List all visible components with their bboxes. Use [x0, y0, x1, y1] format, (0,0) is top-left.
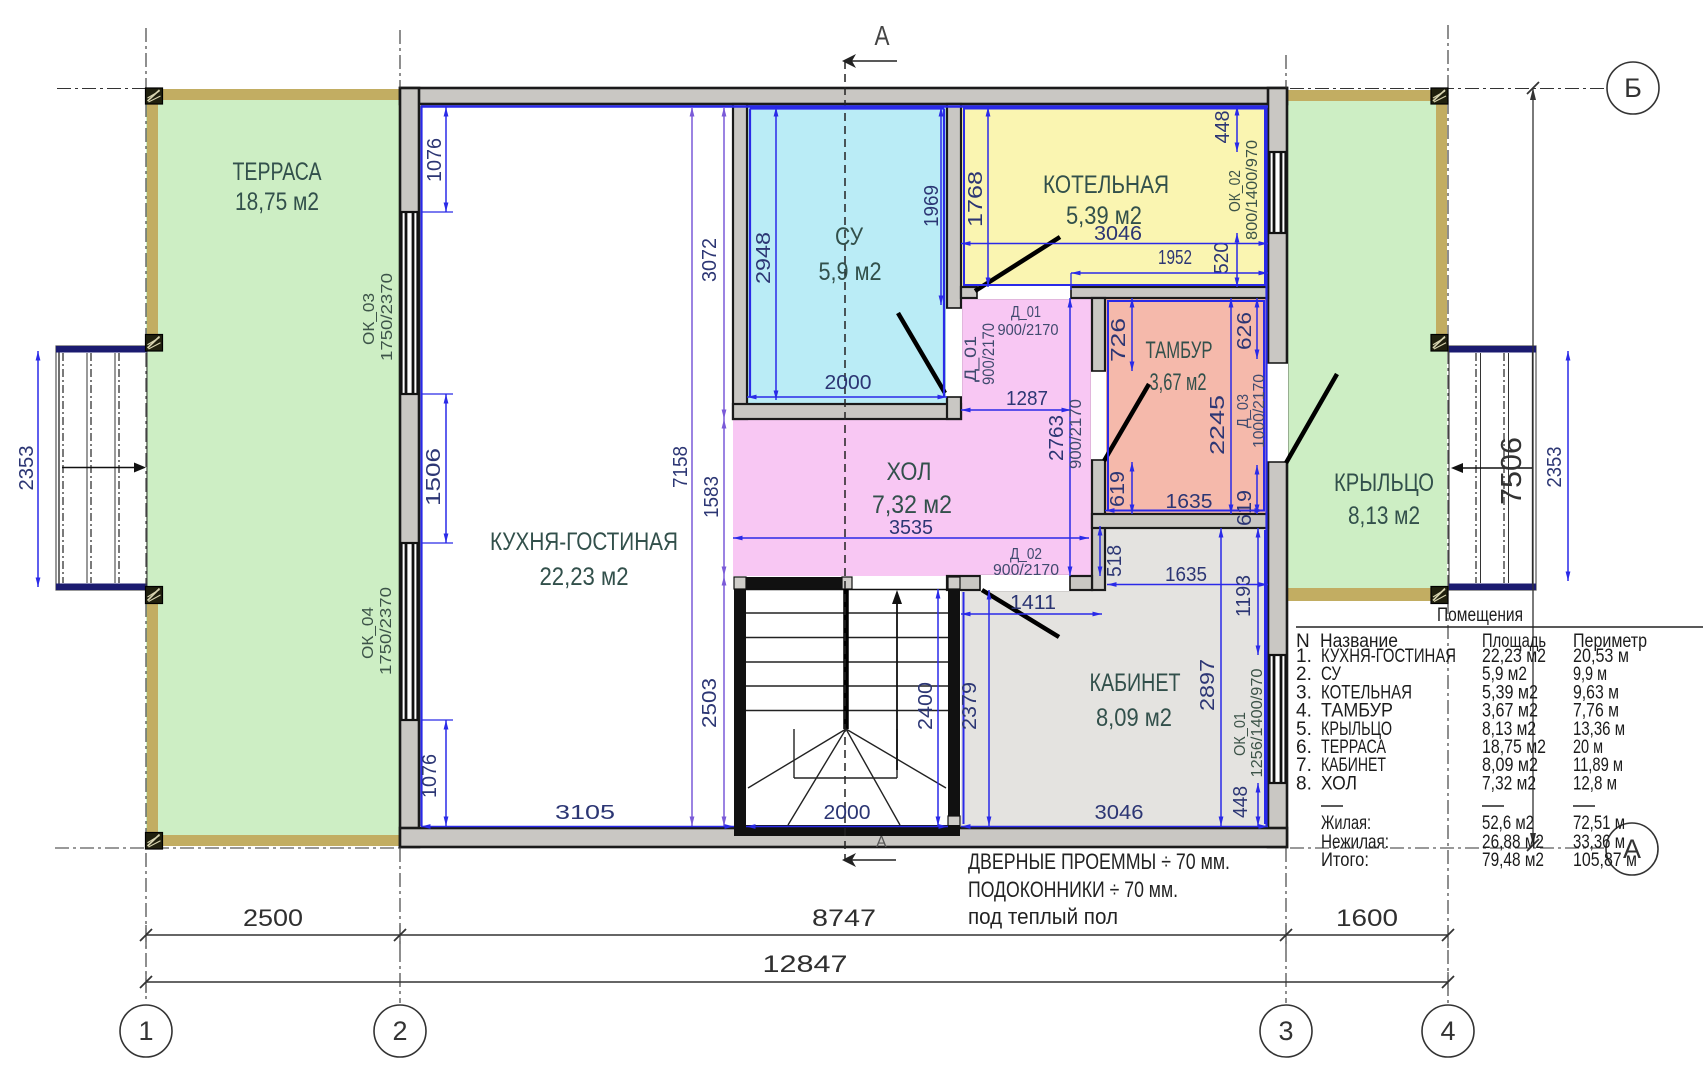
svg-text:1193: 1193 — [1233, 575, 1255, 617]
svg-text:1076: 1076 — [424, 138, 446, 182]
svg-text:ТЕРРАСА: ТЕРРАСА — [233, 158, 322, 186]
svg-text:КАБИНЕТ: КАБИНЕТ — [1090, 669, 1181, 697]
svg-text:2400: 2400 — [915, 682, 937, 730]
svg-text:3: 3 — [1278, 1016, 1293, 1046]
svg-text:22,23 м2: 22,23 м2 — [540, 563, 629, 591]
svg-text:2503: 2503 — [699, 678, 721, 728]
svg-text:72,51 м: 72,51 м — [1573, 813, 1625, 834]
svg-text:А: А — [876, 834, 887, 851]
svg-text:520: 520 — [1211, 242, 1233, 274]
svg-text:1076: 1076 — [419, 754, 441, 798]
svg-text:4: 4 — [1440, 1016, 1455, 1046]
svg-text:СУ: СУ — [835, 223, 863, 251]
svg-text:5,9 м2: 5,9 м2 — [819, 258, 882, 286]
svg-text:900/2170: 900/2170 — [998, 322, 1059, 339]
svg-text:1: 1 — [138, 1016, 153, 1046]
svg-text:ОК_04: ОК_04 — [360, 607, 377, 659]
svg-text:3072: 3072 — [699, 238, 721, 282]
svg-text:518: 518 — [1104, 545, 1126, 577]
svg-text:3535: 3535 — [889, 517, 933, 539]
svg-text:ОК_01: ОК_01 — [1232, 712, 1249, 756]
svg-text:2245: 2245 — [1207, 395, 1229, 455]
svg-text:Д_02: Д_02 — [1010, 546, 1042, 563]
svg-text:КУХНЯ-ГОСТИНАЯ: КУХНЯ-ГОСТИНАЯ — [490, 528, 678, 556]
svg-text:1000/2170: 1000/2170 — [1251, 374, 1268, 448]
svg-text:1411: 1411 — [1010, 592, 1056, 614]
svg-text:2000: 2000 — [825, 372, 872, 394]
svg-text:448: 448 — [1212, 111, 1234, 144]
svg-text:Помещения: Помещения — [1437, 605, 1523, 626]
svg-text:2948: 2948 — [753, 232, 775, 284]
svg-text:ОК_02: ОК_02 — [1227, 170, 1244, 212]
svg-text:A: A — [875, 20, 890, 51]
svg-text:под теплый пол: под теплый пол — [968, 904, 1118, 929]
svg-text:3,67 м2: 3,67 м2 — [1150, 369, 1207, 396]
svg-text:619: 619 — [1234, 490, 1256, 526]
svg-text:105,87 м: 105,87 м — [1573, 850, 1637, 871]
svg-text:8747: 8747 — [812, 905, 876, 932]
svg-text:2353: 2353 — [16, 446, 38, 491]
svg-text:7,32 м2: 7,32 м2 — [1482, 773, 1536, 794]
svg-text:Д_03: Д_03 — [1235, 394, 1252, 428]
svg-text:12847: 12847 — [763, 951, 848, 978]
svg-text:КОТЕЛЬНАЯ: КОТЕЛЬНАЯ — [1043, 171, 1169, 199]
svg-text:1506: 1506 — [423, 448, 445, 506]
svg-text:1750/2370: 1750/2370 — [379, 273, 396, 361]
svg-text:7506: 7506 — [1496, 437, 1528, 505]
svg-text:800/1400/970: 800/1400/970 — [1244, 140, 1261, 240]
svg-text:Итого:: Итого: — [1321, 850, 1369, 871]
svg-text:КУХНЯ-ГОСТИНАЯ: КУХНЯ-ГОСТИНАЯ — [1321, 646, 1456, 667]
svg-text:2763: 2763 — [1046, 415, 1068, 461]
svg-text:ХОЛ: ХОЛ — [887, 458, 932, 486]
svg-text:КРЫЛЬЦО: КРЫЛЬЦО — [1334, 469, 1434, 497]
svg-text:Д_01: Д_01 — [961, 336, 980, 382]
svg-text:2897: 2897 — [1197, 659, 1219, 711]
svg-text:18,75 м2: 18,75 м2 — [235, 188, 319, 216]
svg-text:8,09 м2: 8,09 м2 — [1096, 704, 1172, 732]
svg-text:619: 619 — [1107, 471, 1129, 507]
svg-text:ХОЛ: ХОЛ — [1321, 773, 1357, 794]
svg-text:900/2170: 900/2170 — [993, 562, 1059, 579]
svg-text:2500: 2500 — [243, 905, 303, 932]
svg-text:626: 626 — [1234, 312, 1256, 350]
svg-text:2: 2 — [392, 1016, 407, 1046]
svg-text:ТАМБУР: ТАМБУР — [1146, 337, 1213, 364]
svg-text:2353: 2353 — [1544, 447, 1566, 488]
svg-text:3105: 3105 — [555, 802, 615, 824]
svg-text:1635: 1635 — [1166, 491, 1213, 513]
svg-text:1583: 1583 — [701, 476, 723, 518]
svg-text:1256/1400/970: 1256/1400/970 — [1249, 668, 1266, 777]
svg-text:Д_01: Д_01 — [1011, 304, 1041, 321]
svg-text:2379: 2379 — [959, 682, 981, 730]
svg-text:448: 448 — [1230, 786, 1252, 818]
svg-text:Жилая:: Жилая: — [1321, 813, 1371, 834]
svg-text:1952: 1952 — [1158, 247, 1192, 269]
svg-text:1750/2370: 1750/2370 — [378, 587, 395, 675]
svg-text:ПОДОКОННИКИ ÷ 70 мм.: ПОДОКОННИКИ ÷ 70 мм. — [968, 877, 1178, 902]
svg-text:1287: 1287 — [1006, 388, 1048, 410]
svg-text:1969: 1969 — [921, 185, 943, 227]
svg-text:79,48 м2: 79,48 м2 — [1482, 850, 1544, 871]
svg-text:7158: 7158 — [670, 446, 692, 488]
svg-text:726: 726 — [1108, 318, 1130, 362]
svg-text:1768: 1768 — [965, 171, 987, 227]
svg-text:7,32 м2: 7,32 м2 — [872, 491, 952, 519]
svg-text:ДВЕРНЫЕ ПРОЕММЫ ÷ 70 мм.: ДВЕРНЫЕ ПРОЕММЫ ÷ 70 мм. — [968, 849, 1230, 874]
svg-text:900/2170: 900/2170 — [1066, 399, 1085, 469]
svg-text:900/2170: 900/2170 — [979, 323, 998, 385]
svg-text:52,6 м2: 52,6 м2 — [1482, 813, 1534, 834]
svg-text:8,13 м2: 8,13 м2 — [1348, 502, 1420, 530]
svg-text:1600: 1600 — [1336, 905, 1398, 932]
svg-text:Б: Б — [1624, 73, 1642, 103]
svg-text:5,39 м2: 5,39 м2 — [1066, 202, 1142, 230]
svg-text:8.: 8. — [1296, 773, 1312, 794]
svg-text:ОК_03: ОК_03 — [361, 293, 378, 345]
svg-text:2000: 2000 — [824, 802, 871, 824]
svg-text:3046: 3046 — [1095, 802, 1144, 824]
svg-text:12,8 м: 12,8 м — [1573, 773, 1617, 794]
svg-text:1635: 1635 — [1165, 564, 1207, 586]
